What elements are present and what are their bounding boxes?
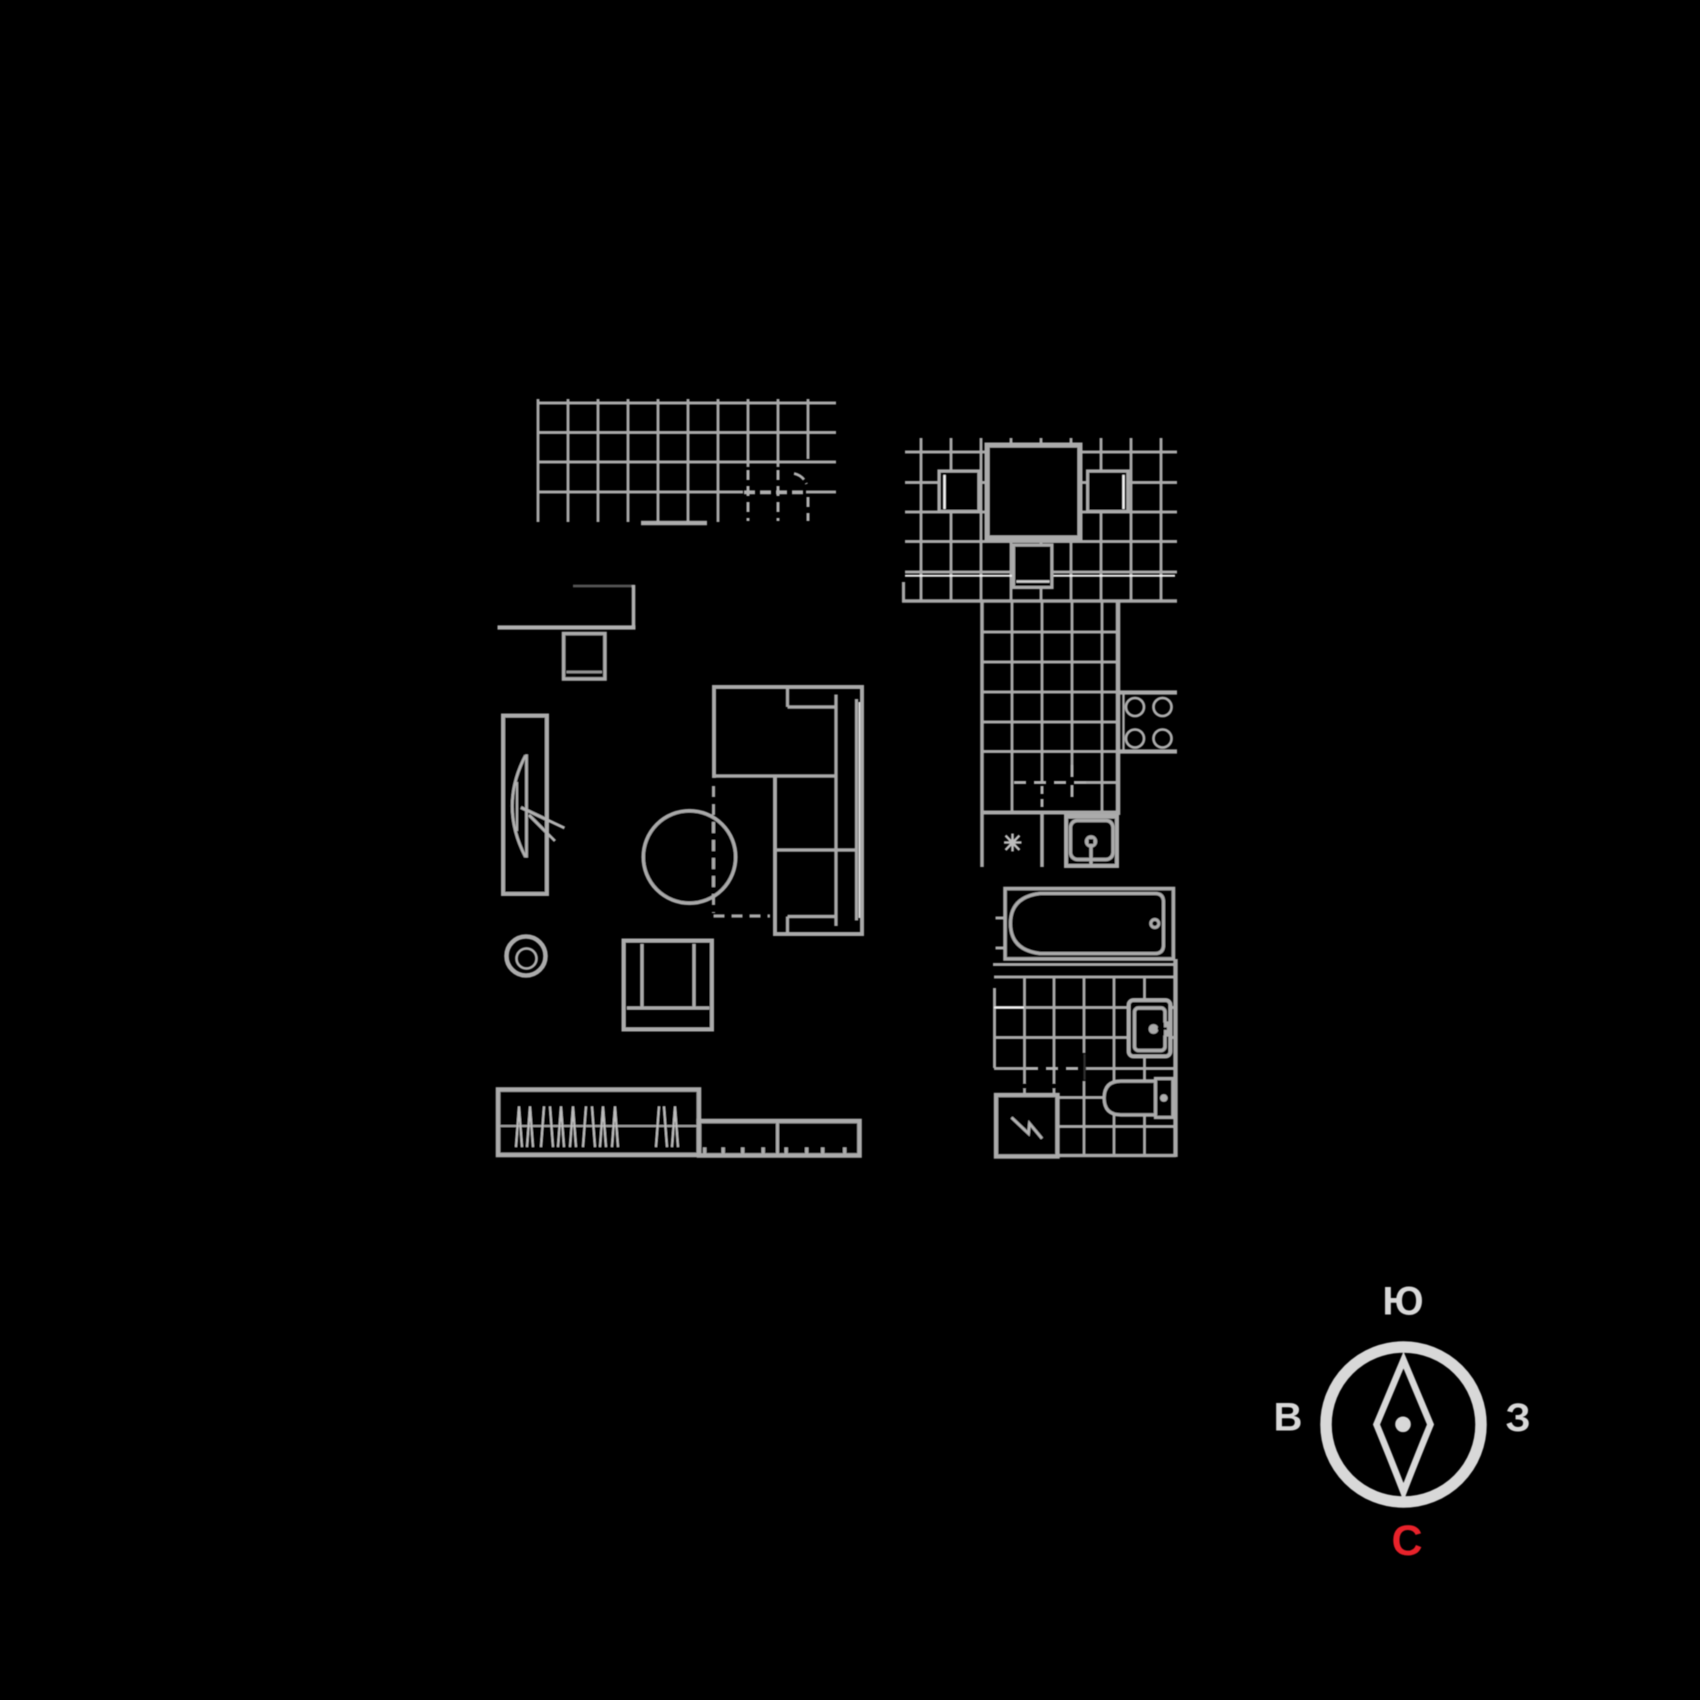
svg-text:Ю: Ю bbox=[1382, 1280, 1423, 1324]
svg-text:С: С bbox=[1391, 1517, 1422, 1565]
svg-text:З: З bbox=[1505, 1396, 1530, 1440]
svg-text:В: В bbox=[1274, 1396, 1303, 1440]
